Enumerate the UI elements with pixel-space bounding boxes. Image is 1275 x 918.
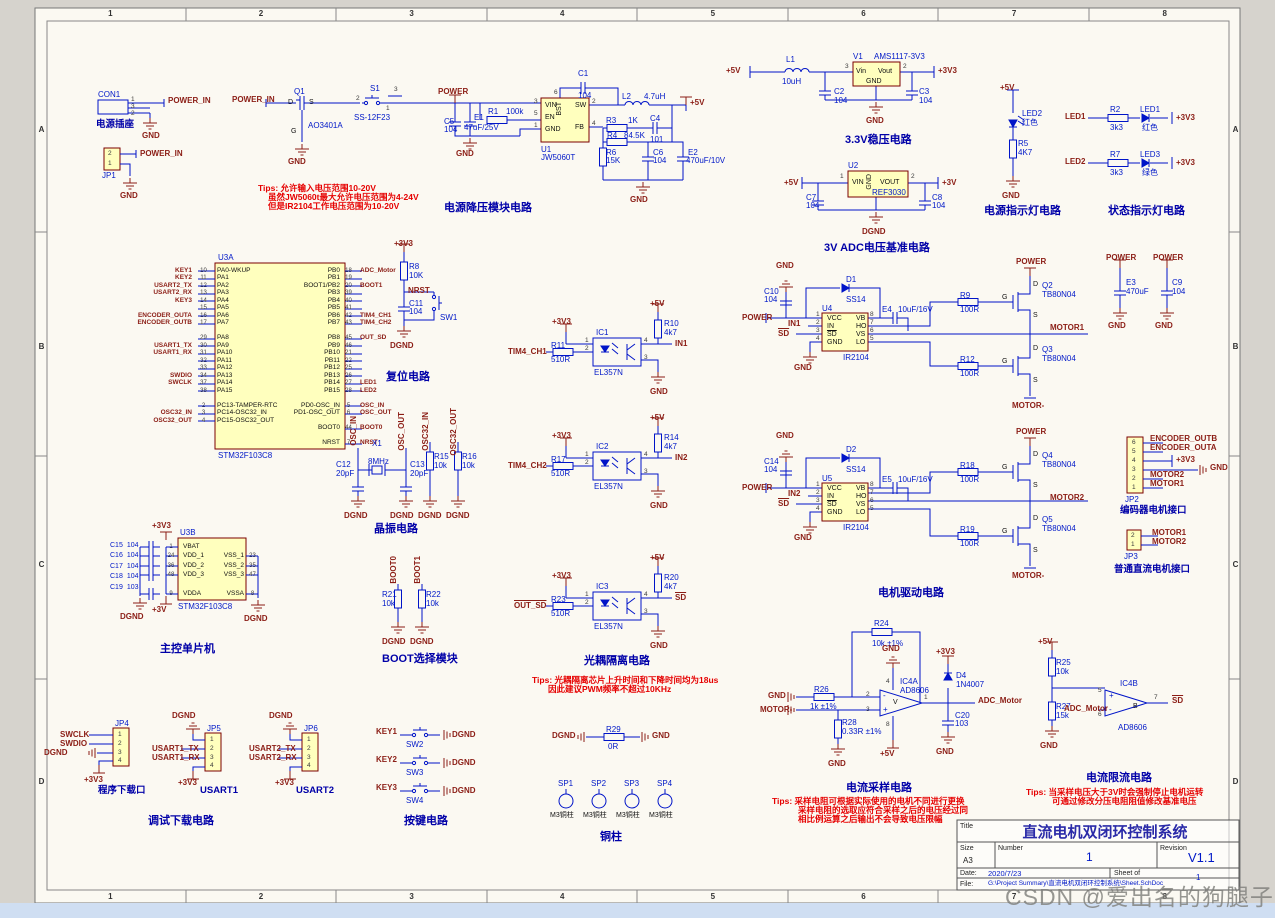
pin-number: 15 — [195, 305, 212, 311]
ref-des: R18 — [960, 462, 975, 470]
part-value: 100R — [960, 476, 979, 484]
pin-number: 23 — [244, 553, 261, 559]
power-net-label: +3V3 — [1176, 456, 1195, 464]
ground-label: DGND — [390, 342, 414, 350]
part-value: 104 — [127, 573, 139, 580]
pin-name: VB — [856, 485, 865, 492]
part-value: JW5060T — [541, 154, 575, 162]
section-title: 电流限流电路 — [1086, 773, 1152, 784]
pin-net-label: OSC32_IN — [106, 410, 195, 417]
pin-number: 47 — [244, 572, 261, 578]
pin-number: 8 — [870, 312, 874, 319]
pin-name: S — [1033, 482, 1038, 489]
pin-number: 2 — [1132, 476, 1136, 483]
pin-name: VDDA — [178, 591, 201, 598]
pin-number: 6 — [870, 498, 874, 505]
pin-number: 3 — [866, 707, 870, 714]
mcu-pin-row: 9VDDA — [164, 590, 204, 600]
power-net-label: +3V — [152, 606, 166, 614]
ref-des: R16 — [462, 453, 477, 461]
part-value: 510R — [551, 610, 570, 618]
mcu-pin-row — [210, 542, 261, 552]
net-label: TIM4_CH1 — [508, 348, 547, 356]
ground-label: GND — [1108, 322, 1126, 330]
frame-column-label: 1 — [35, 892, 186, 901]
ground-label: GND — [1002, 192, 1020, 200]
power-net-label: POWER — [438, 88, 468, 96]
pin-number: 4 — [816, 506, 820, 513]
pin-name: PB10 — [254, 350, 340, 357]
frame-column-label: 8 — [1089, 9, 1240, 18]
pin-number: 4 — [886, 679, 890, 686]
net-label: USART2_RX — [249, 754, 297, 762]
part-value: 104 — [764, 296, 777, 304]
pin-number: 4 — [644, 452, 648, 459]
part-value: 470uF/10V — [686, 157, 725, 165]
pin-name: PD1-OSC_OUT — [254, 410, 340, 417]
part-value: 100R — [960, 306, 979, 314]
pin-name: GND — [827, 339, 843, 346]
ref-des: C18 — [110, 573, 123, 580]
part-value: 15k — [1056, 712, 1069, 720]
ref-des: E4 — [882, 306, 892, 314]
pin-number: 3 — [394, 87, 398, 94]
pin-name: PB12 — [254, 365, 340, 372]
pin-number: 39 — [340, 290, 357, 296]
pin-number: 3 — [644, 355, 648, 362]
pin-number: 27 — [340, 380, 357, 386]
ref-des: C16 — [110, 552, 123, 559]
section-title: 3V ADC电压基准电路 — [824, 243, 930, 254]
ref-des: SP3 — [624, 780, 639, 788]
power-net-label: +3V3 — [552, 572, 571, 580]
pin-name: PA14 — [212, 380, 232, 387]
opamp-label: V — [893, 699, 898, 706]
ground-label: GND — [456, 150, 474, 158]
pin-name: GND — [827, 509, 843, 516]
ref-des: JP1 — [102, 172, 116, 180]
frame-column-label: 4 — [487, 9, 638, 18]
part-value: 10k — [426, 600, 439, 608]
pin-number: 3 — [816, 498, 820, 505]
net-label: USART1_TX — [152, 745, 199, 753]
pin-name: PB14 — [254, 380, 340, 387]
pin-number: 6 — [554, 90, 558, 97]
ref-des: D4 — [956, 672, 966, 680]
mcu-pin-row — [254, 395, 494, 403]
pin-number: 5 — [340, 403, 357, 409]
revision-value: V1.1 — [1188, 851, 1215, 864]
ref-des: R8 — [409, 263, 419, 271]
net-label: OUT_SD — [514, 602, 546, 610]
pin-number: 1 — [924, 695, 928, 702]
pin-name: VBAT — [178, 544, 200, 551]
mcu-pin-row — [164, 580, 204, 590]
part-value: 100k — [506, 108, 523, 116]
pin-net-label: TIM4_CH2 — [357, 320, 391, 327]
ref-des: Q1 — [294, 88, 305, 96]
frame-columns-top: 12345678 — [35, 9, 1240, 18]
net-label: LED2 — [1065, 158, 1085, 166]
pin-number: 10 — [195, 268, 212, 274]
pin-number: 4 — [592, 121, 596, 128]
pin-number: 2 — [585, 346, 589, 353]
part-value: 10uF/16V — [898, 476, 933, 484]
ground-label: GND — [828, 760, 846, 768]
part-value: 510R — [551, 470, 570, 478]
part-value: 10k — [434, 462, 447, 470]
power-net-label: +5V — [1038, 638, 1052, 646]
mcu-pin-row: PB946 — [254, 342, 494, 350]
pin-name: PB8 — [254, 335, 340, 342]
pin-net-label: USART1_RX — [106, 350, 195, 357]
power-net-label: +5V — [726, 67, 740, 75]
power-net-label: +3V3 — [936, 648, 955, 656]
ground-label: DGND — [269, 712, 293, 720]
ground-label: DGND — [120, 613, 144, 621]
part-value: 104 — [653, 157, 666, 165]
pin-net-label: KEY3 — [106, 298, 195, 305]
net-label: MOTOR2 — [1152, 538, 1186, 546]
part-value: 104 — [127, 563, 139, 570]
pin-name: D — [1033, 515, 1038, 522]
ref-des: Q5 — [1042, 516, 1053, 524]
ref-des: Q2 — [1042, 282, 1053, 290]
pin-name: G — [1002, 294, 1007, 301]
pin-number: 2 — [1131, 533, 1135, 540]
pin-number: 1 — [307, 737, 311, 744]
ground-label: GND — [768, 692, 786, 700]
frame-column-label: 2 — [186, 892, 337, 901]
pin-number: 4 — [644, 592, 648, 599]
pin-number: 1 — [1131, 542, 1135, 549]
frame-row-label: A — [36, 21, 47, 238]
section-title: 3.3V稳压电路 — [845, 135, 912, 146]
pin-name: HO — [856, 323, 867, 330]
part-value: 绿色 — [1142, 169, 1158, 177]
pin-number: 4 — [307, 763, 311, 770]
ground-label: GND — [650, 642, 668, 650]
pin-number: 1 — [816, 482, 820, 489]
part-value: 20pF — [336, 470, 354, 478]
ref-des: C9 — [1172, 279, 1182, 287]
pin-number: 1 — [585, 452, 589, 459]
section-title: 复位电路 — [386, 372, 430, 383]
pin-name: EN — [545, 114, 555, 121]
pin-name: VCC — [827, 315, 842, 322]
pin-number: 5 — [870, 336, 874, 343]
pin-number: 1 — [816, 312, 820, 319]
pin-number: 2 — [108, 151, 112, 158]
ref-des: C2 — [834, 88, 844, 96]
mcu-pin-row: PB1225 — [254, 365, 494, 373]
part-value: 104 — [764, 466, 777, 474]
pin-name: VDD_2 — [178, 563, 204, 570]
pin-name: PA5 — [212, 305, 229, 312]
ground-label: DGND — [452, 731, 476, 739]
pin-name: IN — [827, 323, 834, 330]
ref-des: U3B — [180, 529, 196, 537]
pin-number: 24 — [164, 553, 178, 559]
pin-number: 37 — [195, 380, 212, 386]
pin-number: 3 — [307, 755, 311, 762]
net-label: NRST — [408, 287, 430, 295]
mcu-pin-row: PB1427LED1 — [254, 380, 494, 388]
net-label: MOTOR- — [1012, 572, 1044, 580]
ground-label: DGND — [446, 512, 470, 520]
part-value: 1K — [628, 117, 638, 125]
net-label: TIM4_CH2 — [508, 462, 547, 470]
pin-number: 3 — [845, 64, 849, 71]
pin-number: 3 — [210, 755, 214, 762]
net-label: IN1 — [675, 340, 687, 348]
part-value: IR2104 — [843, 524, 869, 532]
part-value: 4k7 — [664, 583, 677, 591]
mcu-pin-row: PB541 — [254, 305, 494, 313]
ground-label: DGND — [552, 732, 576, 740]
pin-number: 2 — [816, 490, 820, 497]
part-value: AD8606 — [1118, 724, 1147, 732]
pin-name: VSS_3 — [210, 572, 244, 579]
pin-name: NRST — [254, 440, 340, 447]
pin-name: G — [291, 128, 296, 135]
ground-label: DGND — [862, 228, 886, 236]
ref-des: R10 — [664, 320, 679, 328]
power-net-label: +5V — [650, 300, 664, 308]
part-value: TB80N04 — [1042, 291, 1076, 299]
ref-des: JP3 — [1124, 553, 1138, 561]
pin-number: 17 — [195, 320, 212, 326]
net-label: POWER_IN — [232, 96, 275, 104]
capacitor-label: C17104 — [110, 561, 143, 572]
ref-des: C17 — [110, 563, 123, 570]
pin-number: 3 — [195, 410, 212, 416]
part-value: SS14 — [846, 296, 866, 304]
ref-des: L2 — [622, 93, 631, 101]
sheet-size: A3 — [963, 857, 973, 865]
mcu-pin-row: 24VDD_1 — [164, 552, 204, 562]
pin-number: 45 — [340, 335, 357, 341]
mcu-pin-row: BOOT1/PB220BOOT1 — [254, 282, 494, 290]
power-net-label: +5V — [1000, 84, 1014, 92]
ref-des: R29 — [606, 726, 621, 734]
pin-number: 5 — [1098, 688, 1102, 695]
section-title: BOOT选择模块 — [382, 654, 458, 665]
pin-net-label: BOOT1 — [357, 283, 382, 290]
ground-label: GND — [936, 748, 954, 756]
part-value: 104 — [919, 97, 932, 105]
power-net-label: +3V3 — [394, 240, 413, 248]
pin-number: 9 — [164, 591, 178, 597]
part-value: IR2104 — [843, 354, 869, 362]
titleblock-number-label: Number — [998, 845, 1023, 852]
ref-des: R23 — [551, 596, 566, 604]
ref-des: LED1 — [1140, 106, 1160, 114]
part-value: 8MHz — [368, 458, 389, 466]
pin-number: 14 — [195, 298, 212, 304]
ref-des: IC3 — [596, 583, 608, 591]
part-value: 470uF — [1126, 288, 1149, 296]
ref-des: R11 — [551, 342, 565, 350]
section-title: USART1 — [200, 786, 238, 796]
pin-name: PA15 — [212, 388, 232, 395]
pin-number: 8 — [870, 482, 874, 489]
section-title: 电流采样电路 — [846, 783, 912, 794]
pin-number: 4 — [1132, 458, 1136, 465]
part-value: 4.7uH — [644, 93, 665, 101]
pin-number: 2 — [911, 174, 915, 181]
part-value: 4k7 — [664, 443, 677, 451]
part-value: 47uF/25V — [464, 124, 499, 132]
pin-number: 3 — [816, 328, 820, 335]
titleblock-revision-label: Revision — [1160, 845, 1187, 852]
pin-number: 3 — [644, 609, 648, 616]
pin-name: HO — [856, 493, 867, 500]
pin-number: 2 — [592, 99, 596, 106]
pin-name: VIN — [545, 102, 557, 109]
part-value: REF3030 — [872, 189, 906, 197]
section-title: 普通直流电机接口 — [1114, 565, 1190, 575]
power-net-label: +3V3 — [1176, 159, 1195, 167]
ref-des: SW1 — [440, 314, 457, 322]
part-value: 10uH — [782, 78, 801, 86]
capacitor-label: C16104 — [110, 551, 143, 562]
ref-des: C3 — [919, 88, 929, 96]
schematic-page: { "page":{"watermark":"CSDN @爱出名的狗腿子","f… — [0, 0, 1275, 918]
part-value: AMS1117-3V3 — [874, 53, 925, 61]
net-label: USART2_TX — [249, 745, 296, 753]
mcu-pin-row: PB743TIM4_CH2 — [254, 320, 494, 328]
ref-des: U5 — [822, 475, 832, 483]
mcu-pin-row: VSS_235 — [210, 561, 261, 571]
pin-number: 2 — [131, 111, 135, 118]
net-label: MOTOR1 — [1050, 324, 1084, 332]
pin-number: 2 — [585, 600, 589, 607]
pin-name: VS — [856, 501, 865, 508]
pin-number: 30 — [195, 343, 212, 349]
pin-number: 46 — [340, 343, 357, 349]
pin-number: 22 — [340, 358, 357, 364]
ref-des: R12 — [960, 356, 975, 364]
frame-column-label: 3 — [336, 892, 487, 901]
pin-number: 1 — [108, 161, 112, 168]
document-title: 直流电机双闭环控制系统 — [990, 826, 1220, 841]
mcu-pin-row: PB440 — [254, 297, 494, 305]
power-net-label: POWER — [1153, 254, 1183, 262]
frame-rows-right: ABCD — [1230, 21, 1241, 890]
ground-label: GND — [650, 388, 668, 396]
ref-des: R24 — [874, 620, 889, 628]
ground-label: GND — [630, 196, 648, 204]
part-value: 10k — [462, 462, 475, 470]
ref-des: R17 — [551, 456, 566, 464]
pin-name: IN — [827, 493, 834, 500]
ref-des: R5 — [1018, 140, 1028, 148]
net-label: OSC32_IN — [422, 412, 430, 451]
part-value: 104 — [932, 202, 945, 210]
ref-des: R28 — [842, 719, 857, 727]
part-value: 10uF/16V — [898, 306, 933, 314]
ground-label: GND — [652, 732, 670, 740]
pin-number: 28 — [340, 388, 357, 394]
part-value: 510R — [551, 356, 570, 364]
part-value: TB80N04 — [1042, 525, 1076, 533]
pin-number: 2 — [210, 746, 214, 753]
pin-name: SD — [827, 501, 837, 508]
pin-number: 5 — [534, 111, 538, 118]
ref-des: R25 — [1056, 659, 1071, 667]
mcu-pin-row: PB1021 — [254, 350, 494, 358]
pin-number: 19 — [340, 275, 357, 281]
ground-label: DGND — [172, 712, 196, 720]
net-label: ADC_Motor — [978, 697, 1022, 705]
ref-des: R19 — [960, 526, 975, 534]
section-title: 电机驱动电路 — [878, 588, 944, 599]
pin-name: BST — [556, 102, 563, 116]
ground-label: GND — [794, 534, 812, 542]
ground-label: GND — [866, 117, 884, 125]
part-value: 4k7 — [664, 329, 677, 337]
power-net-label: POWER — [742, 314, 772, 322]
pin-name: VB — [856, 315, 865, 322]
mcu-decoupling-caps: C15104C16104C17104C18104C19103 — [110, 540, 143, 593]
pin-name: PB1 — [254, 275, 340, 282]
opamp-label: B — [1133, 703, 1138, 710]
pin-name: D — [1033, 345, 1038, 352]
component-label: 电源插座 — [96, 120, 134, 130]
pin-number: 12 — [195, 283, 212, 289]
part-value: 10k — [1056, 668, 1069, 676]
ref-des: R4 — [607, 132, 617, 140]
ref-des: R26 — [814, 686, 829, 694]
part-value: 104 — [127, 542, 139, 549]
pin-name: S — [1033, 312, 1038, 319]
frame-row-label: B — [1230, 238, 1241, 455]
pin-name: Vout — [878, 68, 892, 75]
opamp-minus: - — [883, 692, 886, 700]
pin-number: 1 — [164, 544, 178, 550]
part-value: AO3401A — [308, 122, 343, 130]
pin-name: G — [1002, 528, 1007, 535]
pin-net-label: LED2 — [357, 388, 377, 395]
pin-number: 13 — [195, 290, 212, 296]
net-label: SWDIO — [60, 740, 87, 748]
ref-des: U3A — [218, 254, 234, 262]
net-label: SD — [778, 500, 789, 508]
capacitor-label: C18104 — [110, 572, 143, 583]
part-value: EL357N — [594, 623, 623, 631]
ref-des: C1 — [578, 70, 588, 78]
frame-row-label: B — [36, 238, 47, 455]
pin-number: 40 — [340, 298, 357, 304]
pin-number: 4 — [816, 336, 820, 343]
pin-number: 3 — [1132, 467, 1136, 474]
pin-number: 6 — [1132, 440, 1136, 447]
part-value: TB80N04 — [1042, 461, 1076, 469]
net-label: KEY1 — [376, 728, 397, 736]
ground-label: GND — [288, 158, 306, 166]
net-label: USART1_RX — [152, 754, 200, 762]
part-value: M3铜柱 — [550, 812, 574, 819]
section-title: 光耦隔离电路 — [584, 656, 650, 667]
mcu-pin-row: 36VDD_2 — [164, 561, 204, 571]
pin-name: S — [309, 99, 314, 106]
section-title: 按键电路 — [404, 816, 448, 827]
pin-name: D — [288, 99, 293, 106]
pin-number: 34 — [195, 373, 212, 379]
pin-number: 2 — [585, 460, 589, 467]
pin-number: 11 — [195, 275, 212, 281]
